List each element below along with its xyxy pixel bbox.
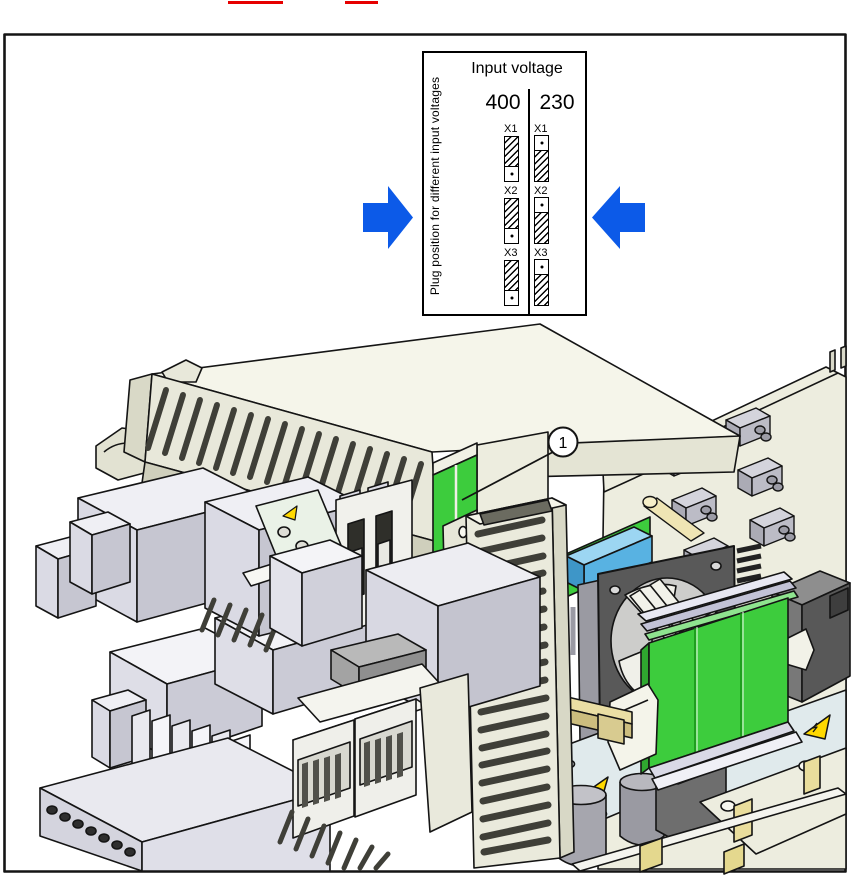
jumper-diagram-230-x3 [534, 260, 549, 306]
jumper-label-400-x3: X3 [504, 247, 534, 259]
panel-side-label: Plug position for different input voltag… [428, 60, 443, 312]
jumper-label-230-x3: X3 [534, 247, 564, 259]
panel-title: Input voltage [448, 60, 586, 78]
jumper-diagram-400-x2 [504, 198, 519, 244]
jumper-label-230-x2: X2 [534, 185, 564, 197]
hex-standoff [804, 756, 820, 794]
jumper-diagram-400-x3 [504, 260, 519, 306]
column-400-label: 400 [474, 91, 532, 115]
jumper-label-400-x2: X2 [504, 185, 534, 197]
jumper-diagram-400-x1 [504, 136, 519, 182]
callout-number: 1 [559, 435, 568, 452]
jumper-diagram-230-x1 [534, 136, 549, 182]
column-230-label: 230 [532, 91, 582, 115]
jumper-label-400-x1: X1 [504, 123, 534, 135]
jumper-diagram-230-x2 [534, 198, 549, 244]
jumper-label-230-x1: X1 [534, 123, 564, 135]
voltage-jumper-panel: Plug position for different input voltag… [422, 51, 587, 316]
manual-page: 1 Plug position for different input volt… [0, 0, 851, 884]
